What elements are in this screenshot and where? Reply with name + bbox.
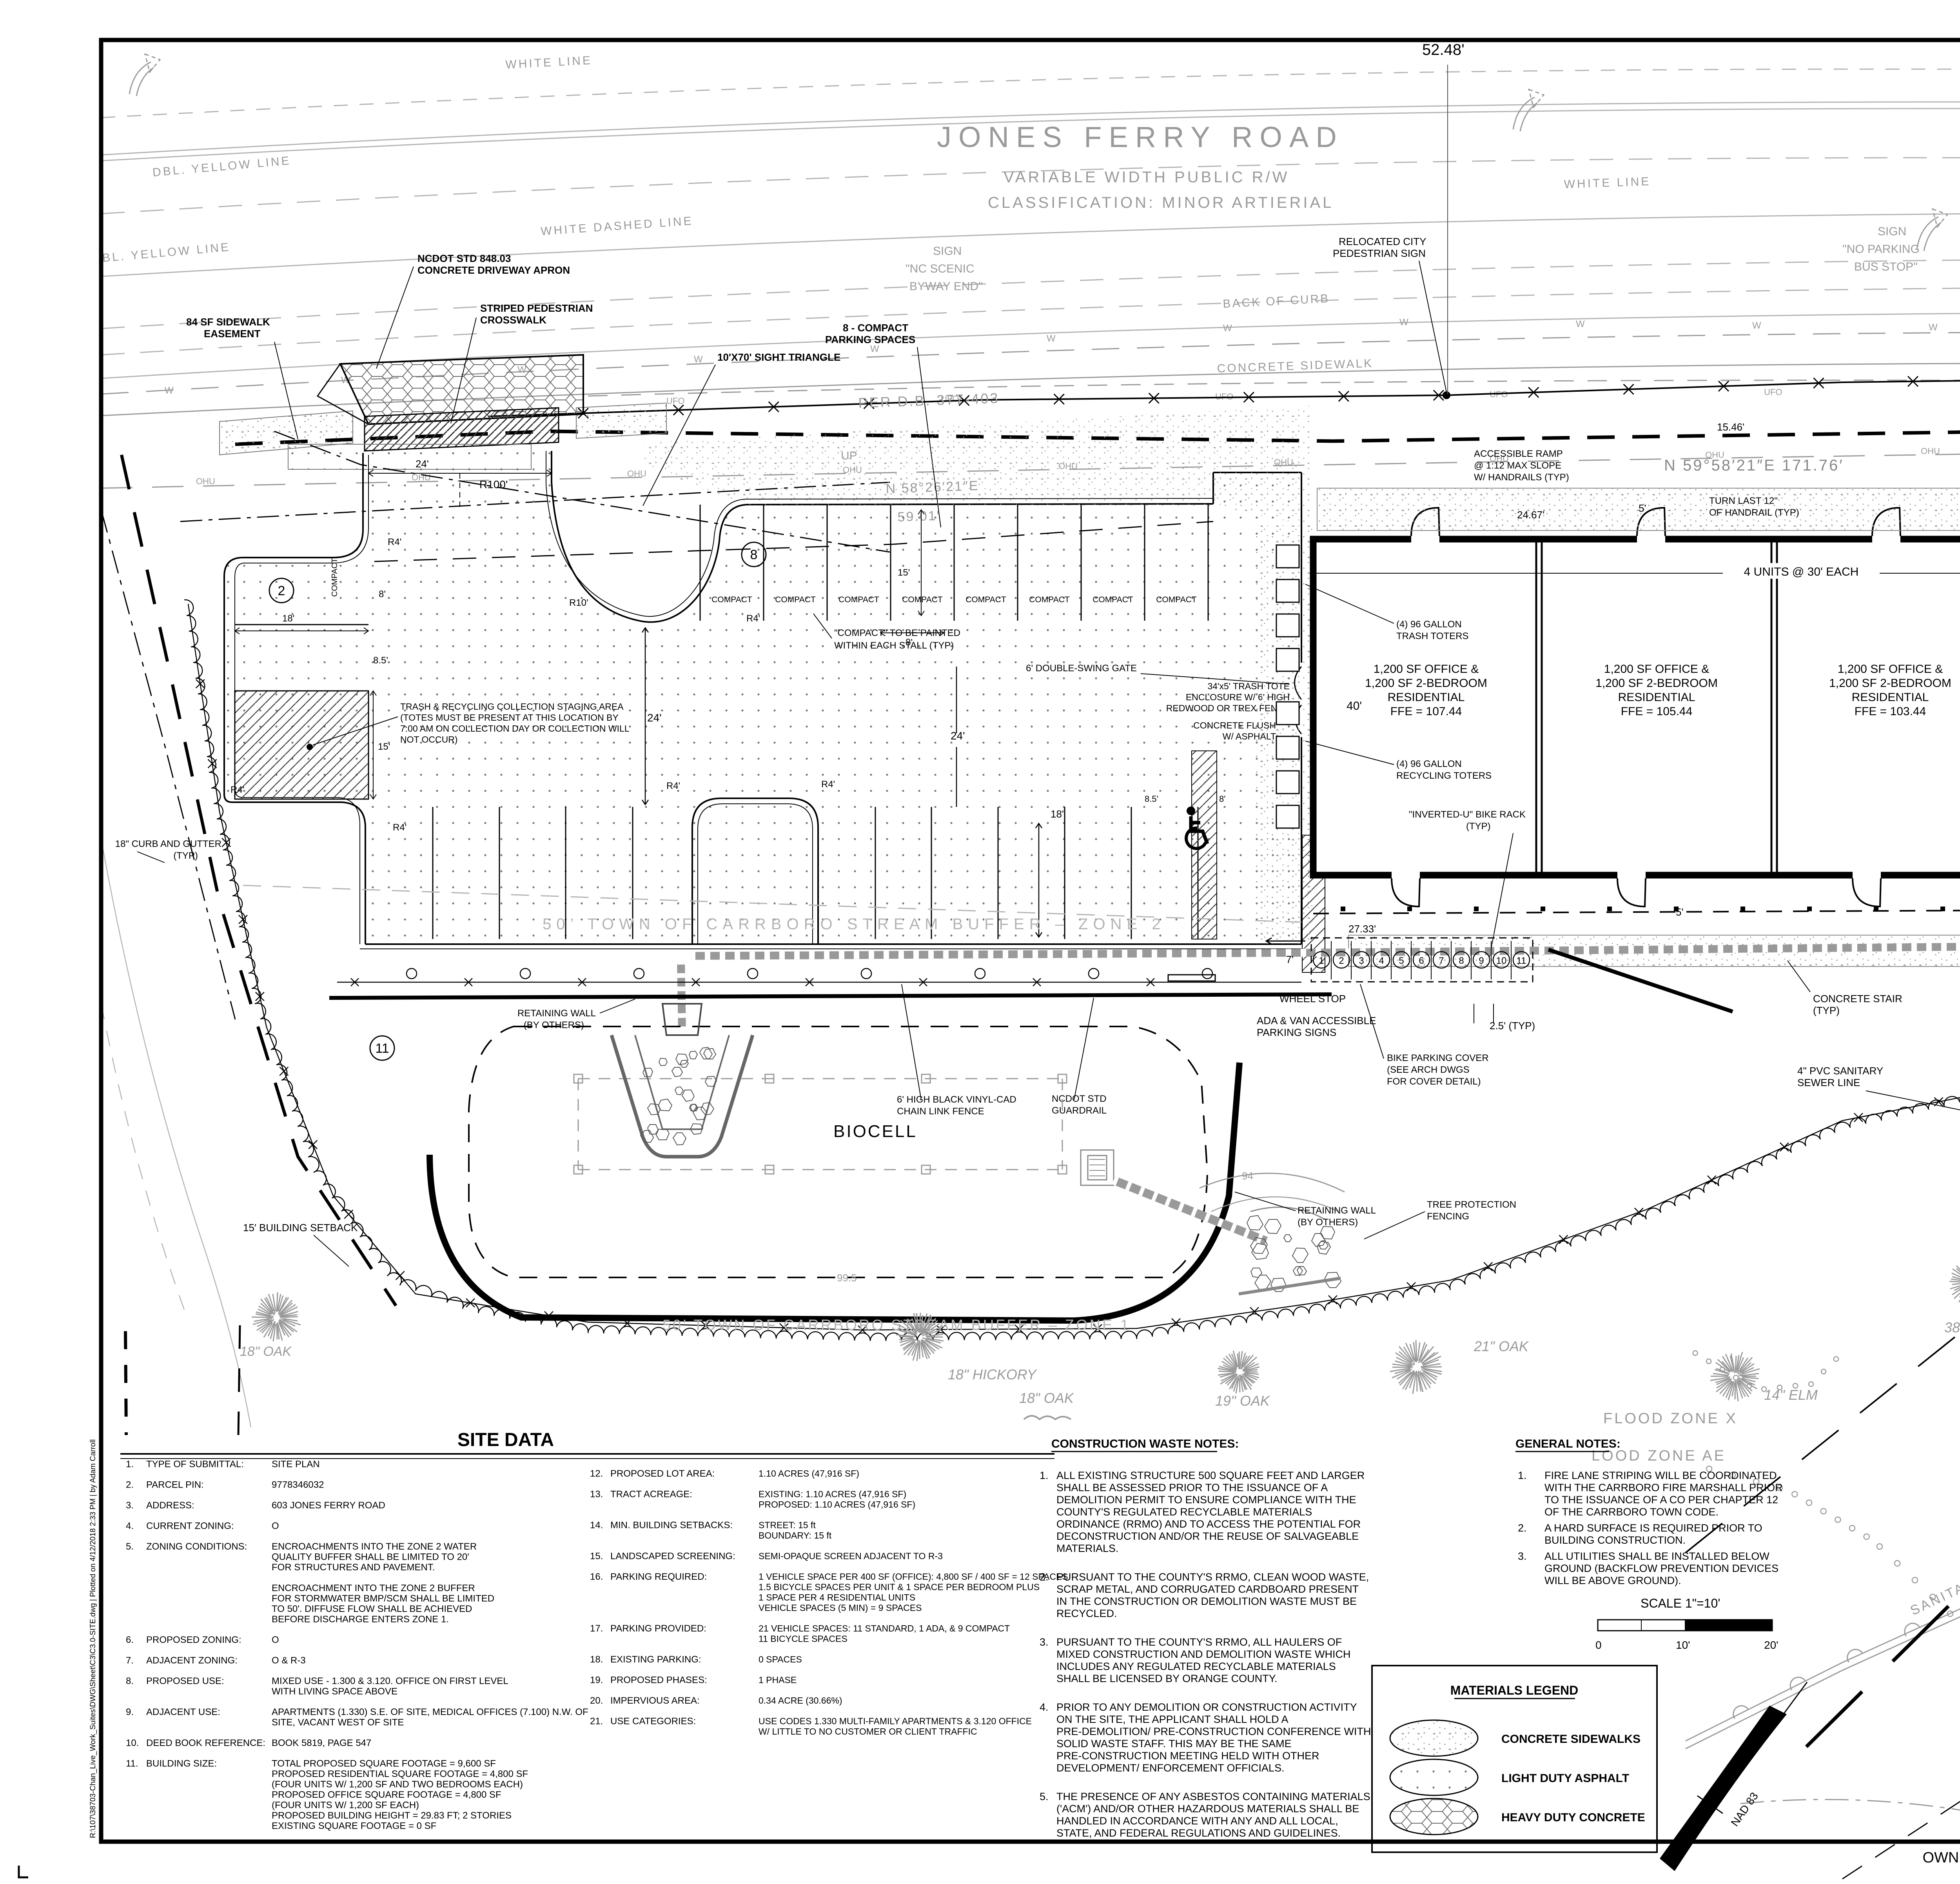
- svg-text:O & R-3: O & R-3: [272, 1655, 306, 1666]
- svg-text:N 59°58′21″E 171.76′: N 59°58′21″E 171.76′: [1664, 457, 1844, 474]
- svg-text:TO THE ISSUANCE OF A CO PER CH: TO THE ISSUANCE OF A CO PER CHAPTER 12: [1544, 1494, 1778, 1506]
- svg-text:PRIOR TO ANY DEMOLITION OR CON: PRIOR TO ANY DEMOLITION OR CONSTRUCTION …: [1056, 1701, 1357, 1713]
- svg-text:BUS STOP": BUS STOP": [1854, 260, 1918, 273]
- svg-text:THE PRESENCE OF ANY ASBESTOS C: THE PRESENCE OF ANY ASBESTOS CONTAINING …: [1056, 1791, 1370, 1802]
- svg-text:OWNER INFORMATION: FRANCIS CHA: OWNER INFORMATION: FRANCIS CHAN; 101 HAR…: [1922, 1849, 1960, 1866]
- svg-text:1.5 BICYCLE SPACES PER UNIT &: 1.5 BICYCLE SPACES PER UNIT & 1 SPACE PE…: [759, 1582, 1040, 1592]
- svg-text:24': 24': [951, 730, 965, 742]
- svg-text:(TYP): (TYP): [1466, 821, 1491, 832]
- svg-text:WITH THE CARRBORO FIRE MARSHAL: WITH THE CARRBORO FIRE MARSHALL PRIOR: [1544, 1482, 1783, 1493]
- svg-text:W: W: [694, 354, 703, 365]
- svg-text:BIKE PARKING COVER: BIKE PARKING COVER: [1387, 1053, 1489, 1063]
- svg-text:8': 8': [1219, 794, 1225, 804]
- svg-text:1 SPACE PER 4 RESIDENTIAL UNIT: 1 SPACE PER 4 RESIDENTIAL UNITS: [759, 1592, 915, 1602]
- svg-text:FOR STORMWATER BMP/SCM SHALL B: FOR STORMWATER BMP/SCM SHALL BE LIMITED: [272, 1593, 494, 1604]
- svg-text:50’ TOWN OF CARRBORO STREA: 50’ TOWN OF CARRBORO STREAM BUFFER – ZON…: [543, 916, 1166, 933]
- svg-text:20.: 20.: [590, 1695, 603, 1706]
- svg-text:24': 24': [416, 458, 429, 470]
- svg-text:8 - COMPACT: 8 - COMPACT: [843, 322, 908, 334]
- svg-text:NOT OCCUR): NOT OCCUR): [400, 734, 458, 745]
- svg-text:14.: 14.: [590, 1520, 603, 1531]
- svg-text:1,200 SF OFFICE &: 1,200 SF OFFICE &: [1374, 663, 1479, 676]
- svg-text:10.: 10.: [126, 1738, 139, 1748]
- svg-text:RECYCLING TOTERS: RECYCLING TOTERS: [1396, 770, 1492, 781]
- svg-text:1 PHASE: 1 PHASE: [759, 1675, 797, 1685]
- svg-text:PARKING SPACES: PARKING SPACES: [825, 334, 915, 345]
- svg-text:@ 1:12 MAX SLOPE: @ 1:12 MAX SLOPE: [1474, 460, 1561, 471]
- svg-text:FFE = 103.44: FFE = 103.44: [1855, 705, 1926, 718]
- svg-text:COMPACT: COMPACT: [965, 595, 1006, 604]
- svg-text:20': 20': [1764, 1639, 1779, 1651]
- svg-text:MATERIALS LEGEND: MATERIALS LEGEND: [1450, 1683, 1579, 1697]
- svg-text:PROPOSED RESIDENTIAL SQUARE FO: PROPOSED RESIDENTIAL SQUARE FOOTAGE = 4,…: [272, 1769, 528, 1779]
- svg-text:O: O: [272, 1521, 279, 1532]
- svg-text:SIGN: SIGN: [933, 245, 962, 258]
- svg-text:R4': R4': [666, 781, 680, 791]
- svg-text:ADDRESS:: ADDRESS:: [146, 1500, 194, 1511]
- svg-text:O: O: [272, 1635, 279, 1645]
- svg-text:RESIDENTIAL: RESIDENTIAL: [1852, 691, 1929, 704]
- svg-text:RETAINING WALL: RETAINING WALL: [517, 1008, 596, 1019]
- svg-text:2.: 2.: [1518, 1522, 1527, 1534]
- svg-text:7:00 AM ON COLLECTION DAY OR C: 7:00 AM ON COLLECTION DAY OR COLLECTION …: [400, 723, 630, 734]
- svg-text:RELOCATED CITY: RELOCATED CITY: [1339, 236, 1426, 247]
- svg-text:5.: 5.: [1040, 1791, 1049, 1802]
- svg-text:CURRENT ZONING:: CURRENT ZONING:: [146, 1521, 234, 1532]
- svg-text:W: W: [1752, 320, 1761, 331]
- svg-text:7': 7': [1286, 954, 1294, 965]
- svg-text:9.: 9.: [126, 1707, 134, 1717]
- svg-text:R100': R100': [479, 478, 508, 491]
- svg-text:ADJACENT USE:: ADJACENT USE:: [146, 1707, 220, 1717]
- svg-text:BYWAY END": BYWAY END": [909, 280, 983, 293]
- svg-text:10: 10: [1496, 956, 1507, 966]
- svg-text:IMPERVIOUS AREA:: IMPERVIOUS AREA:: [610, 1695, 700, 1706]
- svg-text:"INVERTED-U" BIKE RACK: "INVERTED-U" BIKE RACK: [1409, 809, 1526, 820]
- svg-text:18" OAK: 18" OAK: [240, 1344, 292, 1359]
- svg-text:PEDESTRIAN SIGN: PEDESTRIAN SIGN: [1333, 247, 1426, 259]
- svg-text:UP: UP: [841, 449, 857, 462]
- svg-text:18" OAK: 18" OAK: [1019, 1390, 1074, 1406]
- svg-text:STATE, AND FEDERAL REGULATIONS: STATE, AND FEDERAL REGULATIONS AND GUIDE…: [1056, 1827, 1341, 1839]
- svg-text:CONCRETE STAIR: CONCRETE STAIR: [1813, 993, 1902, 1005]
- svg-text:FFE = 105.44: FFE = 105.44: [1621, 705, 1693, 718]
- svg-text:0.34 ACRE (30.66%): 0.34 ACRE (30.66%): [759, 1695, 842, 1706]
- svg-text:COMPACT: COMPACT: [838, 595, 879, 604]
- svg-text:BIOCELL: BIOCELL: [833, 1122, 917, 1141]
- svg-text:R:\107\38703-Chan_Live_Work_Su: R:\107\38703-Chan_Live_Work_Suites\DWG\S…: [89, 1439, 97, 1838]
- svg-text:24.67': 24.67': [1517, 509, 1544, 521]
- svg-text:1.10 ACRES (47,916 SF): 1.10 ACRES (47,916 SF): [759, 1468, 859, 1479]
- svg-text:PARCEL PIN:: PARCEL PIN:: [146, 1480, 204, 1490]
- svg-text:99.5: 99.5: [837, 1272, 857, 1284]
- svg-text:9: 9: [1479, 956, 1484, 966]
- svg-text:ENCROACHMENTS INTO THE ZONE 2: ENCROACHMENTS INTO THE ZONE 2 WATER: [272, 1541, 477, 1552]
- svg-text:CONCRETE SIDEWALKS: CONCRETE SIDEWALKS: [1501, 1733, 1641, 1746]
- svg-text:CLASSIFICATION: MINOR ARTIERI: CLASSIFICATION: MINOR ARTIERIAL: [988, 194, 1334, 211]
- svg-text:PRE-DEMOLITION/ PRE-CONSTRUCTI: PRE-DEMOLITION/ PRE-CONSTRUCTION CONFERE…: [1056, 1726, 1371, 1737]
- svg-text:1,200 SF OFFICE &: 1,200 SF OFFICE &: [1604, 663, 1709, 676]
- svg-text:USE CATEGORIES:: USE CATEGORIES:: [610, 1716, 696, 1727]
- svg-text:TREE PROTECTION: TREE PROTECTION: [1427, 1199, 1516, 1210]
- svg-text:(4) 96 GALLON: (4) 96 GALLON: [1396, 619, 1462, 630]
- svg-text:4.: 4.: [1040, 1701, 1049, 1713]
- svg-text:COMPACT: COMPACT: [1029, 595, 1070, 604]
- svg-text:5': 5': [1639, 502, 1646, 514]
- svg-text:21.: 21.: [590, 1716, 603, 1727]
- svg-text:W: W: [1576, 319, 1585, 329]
- svg-text:R4': R4': [388, 537, 401, 547]
- svg-text:COMPACT: COMPACT: [775, 595, 816, 604]
- svg-text:11 BICYCLE SPACES: 11 BICYCLE SPACES: [759, 1634, 848, 1644]
- svg-text:15': 15': [378, 741, 390, 752]
- svg-text:VARIABLE WIDTH PUBLIC R/W: VARIABLE WIDTH PUBLIC R/W: [1004, 169, 1289, 186]
- svg-text:W: W: [1929, 322, 1938, 332]
- svg-text:DEVELOPMENT/ ENFORCEMENT OFFIC: DEVELOPMENT/ ENFORCEMENT OFFICIALS.: [1056, 1762, 1285, 1774]
- svg-text:FFE = 107.44: FFE = 107.44: [1390, 705, 1462, 718]
- svg-text:FOR STRUCTURES AND PAVEMENT.: FOR STRUCTURES AND PAVEMENT.: [272, 1562, 435, 1573]
- svg-text:GUARDRAIL: GUARDRAIL: [1052, 1105, 1107, 1116]
- svg-text:PROPOSED BUILDING HEIGHT = 29.: PROPOSED BUILDING HEIGHT = 29.83 FT; 2 S…: [272, 1810, 512, 1821]
- svg-text:2: 2: [278, 583, 285, 598]
- svg-text:HANDLED IN ACCORDANCE WITH ANY: HANDLED IN ACCORDANCE WITH ANY AND ALL L…: [1056, 1815, 1338, 1827]
- svg-text:EXISTING SQUARE FOOTAGE = 0 SF: EXISTING SQUARE FOOTAGE = 0 SF: [272, 1821, 436, 1831]
- svg-text:INCLUDES ANY REGULATED RECYCLA: INCLUDES ANY REGULATED RECYCLABLE MATERI…: [1056, 1661, 1336, 1672]
- svg-text:2.5' (TYP): 2.5' (TYP): [1490, 1020, 1535, 1032]
- svg-text:"NO PARKING: "NO PARKING: [1842, 243, 1920, 256]
- svg-text:ENCROACHMENT INTO THE ZONE 2 B: ENCROACHMENT INTO THE ZONE 2 BUFFER: [272, 1583, 475, 1593]
- svg-text:R10': R10': [569, 598, 588, 608]
- svg-text:SCRAP METAL, AND CORRUGATED CA: SCRAP METAL, AND CORRUGATED CARDBOARD PR…: [1056, 1583, 1359, 1595]
- svg-text:COMPACT: COMPACT: [330, 558, 339, 597]
- svg-text:52.48': 52.48': [1422, 41, 1465, 58]
- svg-text:SIGN: SIGN: [1878, 225, 1906, 238]
- svg-text:R4': R4': [230, 785, 244, 795]
- svg-text:"NC SCENIC: "NC SCENIC: [906, 262, 975, 275]
- svg-text:SEMI-OPAQUE SCREEN ADJACENT TO: SEMI-OPAQUE SCREEN ADJACENT TO R-3: [759, 1551, 943, 1561]
- svg-text:8.: 8.: [126, 1676, 134, 1686]
- svg-text:FIRE LANE STRIPING WILL BE COO: FIRE LANE STRIPING WILL BE COORDINATED: [1544, 1470, 1777, 1481]
- svg-text:CHAIN LINK FENCE: CHAIN LINK FENCE: [897, 1106, 984, 1117]
- svg-text:STREET: 15 ft: STREET: 15 ft: [759, 1520, 816, 1530]
- svg-text:18': 18': [282, 613, 294, 624]
- svg-text:BUILDING SIZE:: BUILDING SIZE:: [146, 1759, 217, 1769]
- svg-text:(4) 96 GALLON: (4) 96 GALLON: [1396, 759, 1462, 769]
- svg-text:TRACT ACREAGE:: TRACT ACREAGE:: [610, 1489, 692, 1500]
- svg-text:(FOUR UNITS W/ 1,200 SF AND TW: (FOUR UNITS W/ 1,200 SF AND TWO BEDROOMS…: [272, 1779, 523, 1790]
- svg-text:2.: 2.: [1040, 1571, 1049, 1583]
- svg-text:EXISTING: 1.10 ACRES (47,916: EXISTING: 1.10 ACRES (47,916 SF): [759, 1489, 906, 1499]
- svg-text:R4': R4': [393, 822, 407, 833]
- svg-text:6: 6: [1419, 956, 1424, 966]
- svg-text:PROPOSED USE:: PROPOSED USE:: [146, 1676, 224, 1686]
- svg-text:COMPACT: COMPACT: [1156, 595, 1197, 604]
- svg-text:1.: 1.: [1518, 1470, 1527, 1481]
- svg-text:50’ TOWN OF CARRBORO STREA: 50’ TOWN OF CARRBORO STREAM BUFFER – ZON…: [662, 1317, 1131, 1334]
- svg-text:APARTMENTS (1.330) S.E. OF SIT: APARTMENTS (1.330) S.E. OF SITE, MEDICAL…: [272, 1707, 588, 1717]
- svg-text:SITE PLAN: SITE PLAN: [272, 1459, 320, 1470]
- svg-text:STRIPED PEDESTRIAN: STRIPED PEDESTRIAN: [480, 302, 593, 314]
- svg-text:COMPACT: COMPACT: [711, 595, 752, 604]
- svg-text:10': 10': [1676, 1639, 1690, 1651]
- svg-text:W: W: [1399, 317, 1408, 328]
- svg-text:3.: 3.: [1040, 1636, 1049, 1648]
- svg-text:ZONING CONDITIONS:: ZONING CONDITIONS:: [146, 1541, 247, 1552]
- svg-text:OHU: OHU: [1921, 446, 1940, 456]
- svg-text:1.: 1.: [126, 1459, 134, 1470]
- svg-text:38" OAK: 38" OAK: [1944, 1319, 1960, 1335]
- svg-text:"COMPACT" TO BE PAINTED: "COMPACT" TO BE PAINTED: [834, 628, 960, 638]
- svg-text:4: 4: [1379, 956, 1384, 966]
- svg-text:11.: 11.: [126, 1759, 138, 1769]
- svg-text:DECONSTRUCTION AND/OR THE REUS: DECONSTRUCTION AND/OR THE REUSE OF SALVA…: [1056, 1530, 1359, 1542]
- svg-text:PROPOSED ZONING:: PROPOSED ZONING:: [146, 1635, 241, 1645]
- svg-text:CROSSWALK: CROSSWALK: [480, 314, 546, 326]
- svg-text:BOUNDARY: 15 ft: BOUNDARY: 15 ft: [759, 1530, 832, 1541]
- svg-text:R4': R4': [821, 779, 835, 790]
- svg-text:18': 18': [1051, 808, 1064, 820]
- svg-text:1: 1: [1319, 956, 1324, 966]
- svg-text:RETAINING WALL: RETAINING WALL: [1298, 1205, 1376, 1216]
- svg-text:SEWER LINE: SEWER LINE: [1797, 1077, 1860, 1088]
- svg-text:5: 5: [1399, 956, 1404, 966]
- svg-text:84 SF SIDEWALK: 84 SF SIDEWALK: [186, 316, 270, 328]
- svg-text:JONES FERRY ROAD: JONES FERRY ROAD: [937, 121, 1344, 153]
- svg-text:1,200 SF 2-BEDROOM: 1,200 SF 2-BEDROOM: [1829, 677, 1951, 690]
- svg-text:COMPACT: COMPACT: [902, 595, 943, 604]
- svg-text:DEMOLITION PERMIT TO ENSURE CO: DEMOLITION PERMIT TO ENSURE COMPLIANCE W…: [1056, 1494, 1356, 1506]
- svg-text:ACCESSIBLE RAMP: ACCESSIBLE RAMP: [1474, 449, 1563, 459]
- svg-text:18.: 18.: [590, 1654, 603, 1665]
- svg-text:DEED BOOK REFERENCE:: DEED BOOK REFERENCE:: [146, 1738, 265, 1748]
- svg-text:UFO: UFO: [666, 396, 684, 406]
- svg-text:('ACM') AND/OR OTHER HAZARDOUS: ('ACM') AND/OR OTHER HAZARDOUS MATERIALS…: [1056, 1803, 1359, 1815]
- svg-text:15′ BUILDING SETBACK: 15′ BUILDING SETBACK: [243, 1222, 358, 1234]
- svg-text:1,200 SF OFFICE &: 1,200 SF OFFICE &: [1838, 663, 1943, 676]
- svg-text:PROPOSED PHASES:: PROPOSED PHASES:: [610, 1675, 707, 1686]
- svg-text:24': 24': [647, 712, 662, 724]
- svg-text:W: W: [165, 385, 174, 396]
- svg-text:6.: 6.: [126, 1635, 134, 1645]
- svg-text:18" HICKORY: 18" HICKORY: [948, 1366, 1037, 1383]
- svg-text:PRE-CONSTRUCTION MEETING HELD: PRE-CONSTRUCTION MEETING HELD WITH OTHER: [1056, 1750, 1319, 1762]
- svg-text:1,200 SF 2-BEDROOM: 1,200 SF 2-BEDROOM: [1365, 677, 1487, 690]
- svg-text:6' HIGH BLACK VINYL-CAD: 6' HIGH BLACK VINYL-CAD: [897, 1094, 1016, 1105]
- svg-text:10'X70' SIGHT TRIANGLE: 10'X70' SIGHT TRIANGLE: [717, 351, 840, 363]
- svg-text:PROPOSED: 1.10 ACRES (47,916 S: PROPOSED: 1.10 ACRES (47,916 SF): [759, 1499, 915, 1510]
- svg-text:0 SPACES: 0 SPACES: [759, 1654, 802, 1664]
- svg-text:603 JONES FERRY ROAD: 603 JONES FERRY ROAD: [272, 1500, 385, 1511]
- svg-text:5.: 5.: [126, 1541, 134, 1552]
- svg-text:W: W: [1223, 323, 1232, 333]
- svg-text:PARKING REQUIRED:: PARKING REQUIRED:: [610, 1572, 707, 1582]
- svg-text:PROPOSED OFFICE SQUARE FOOTAGE: PROPOSED OFFICE SQUARE FOOTAGE = 4,800 S…: [272, 1790, 501, 1800]
- svg-text:A HARD SURFACE IS REQUIRED PRI: A HARD SURFACE IS REQUIRED PRIOR TO: [1544, 1522, 1762, 1534]
- svg-text:VEHICLE SPACES (5 MIN) = 9 SPA: VEHICLE SPACES (5 MIN) = 9 SPACES: [759, 1603, 922, 1613]
- svg-text:PARKING PROVIDED:: PARKING PROVIDED:: [610, 1623, 706, 1634]
- svg-text:BUILDING CONSTRUCTION.: BUILDING CONSTRUCTION.: [1544, 1534, 1686, 1546]
- svg-text:17.: 17.: [590, 1623, 603, 1634]
- svg-text:OHU: OHU: [627, 469, 646, 479]
- svg-text:(BY OTHERS): (BY OTHERS): [524, 1020, 584, 1030]
- svg-text:TRASH & RECYCLING COLLECTION S: TRASH & RECYCLING COLLECTION STAGING ARE…: [400, 701, 624, 712]
- svg-text:GROUND (BACKFLOW PREVENTION DE: GROUND (BACKFLOW PREVENTION DEVICES: [1544, 1562, 1779, 1574]
- svg-text:BEFORE DISCHARGE ENTERS ZONE 1: BEFORE DISCHARGE ENTERS ZONE 1.: [272, 1614, 449, 1625]
- svg-text:14" ELM: 14" ELM: [1764, 1387, 1818, 1403]
- svg-text:3: 3: [1359, 956, 1364, 966]
- svg-text:MATERIALS.: MATERIALS.: [1056, 1542, 1119, 1554]
- svg-text:94: 94: [1242, 1170, 1253, 1182]
- svg-text:MIXED CONSTRUCTION AND DEMOLIT: MIXED CONSTRUCTION AND DEMOLITION WASTE …: [1056, 1648, 1351, 1660]
- svg-text:6' DOUBLE-SWING GATE: 6' DOUBLE-SWING GATE: [1026, 663, 1137, 674]
- svg-text:8.5': 8.5': [1145, 794, 1158, 804]
- svg-text:TOTAL PROPOSED SQUARE FOOTAGE: TOTAL PROPOSED SQUARE FOOTAGE = 9,600 SF: [272, 1759, 496, 1769]
- svg-text:16.: 16.: [590, 1572, 603, 1582]
- svg-text:OF THE CARRBORO TOWN CODE.: OF THE CARRBORO TOWN CODE.: [1544, 1506, 1719, 1518]
- svg-text:LANDSCAPED SCREENING:: LANDSCAPED SCREENING:: [610, 1551, 735, 1562]
- svg-text:4" PVC SANITARY: 4" PVC SANITARY: [1797, 1065, 1883, 1077]
- svg-text:3.: 3.: [1518, 1550, 1527, 1562]
- svg-text:8': 8': [379, 589, 386, 600]
- svg-text:27.33': 27.33': [1348, 923, 1376, 935]
- svg-text:TURN LAST 12": TURN LAST 12": [1709, 496, 1778, 506]
- svg-text:QUALITY BUFFER SHALL BE LIMITE: QUALITY BUFFER SHALL BE LIMITED TO 20': [272, 1552, 469, 1562]
- svg-text:SHALL BE ASSESSED PRIOR TO THE: SHALL BE ASSESSED PRIOR TO THE ISSUANCE …: [1056, 1482, 1328, 1493]
- svg-text:USE CODES 1.330 MULTI-FAMILY A: USE CODES 1.330 MULTI-FAMILY APARTMENTS …: [759, 1716, 1032, 1726]
- svg-text:ADA & VAN ACCESSIBLE: ADA & VAN ACCESSIBLE: [1257, 1015, 1376, 1026]
- svg-text:CONSTRUCTION WASTE NOTES:: CONSTRUCTION WASTE NOTES:: [1051, 1437, 1239, 1450]
- svg-text:SITE, VACANT WEST OF SITE: SITE, VACANT WEST OF SITE: [272, 1717, 404, 1728]
- svg-text:PARKING SIGNS: PARKING SIGNS: [1257, 1026, 1336, 1038]
- svg-text:9778346032: 9778346032: [272, 1480, 324, 1490]
- svg-text:FOR COVER DETAIL): FOR COVER DETAIL): [1387, 1076, 1481, 1087]
- svg-text:SOLID WASTE STAFF. THIS MAY BE: SOLID WASTE STAFF. THIS MAY BE THE SAME: [1056, 1738, 1292, 1750]
- svg-text:4.: 4.: [126, 1521, 134, 1532]
- svg-text:MIN. BUILDING SETBACKS:: MIN. BUILDING SETBACKS:: [610, 1520, 733, 1531]
- svg-text:W/ LITTLE TO NO CUSTOMER OR CL: W/ LITTLE TO NO CUSTOMER OR CLIENT TRAFF…: [759, 1726, 977, 1737]
- svg-text:ORDINANCE (RRMO) AND TO ACCESS: ORDINANCE (RRMO) AND TO ACCESS THE POTEN…: [1056, 1518, 1361, 1530]
- svg-text:BOOK 5819, PAGE 547: BOOK 5819, PAGE 547: [272, 1738, 371, 1748]
- svg-text:15': 15': [898, 567, 910, 578]
- svg-text:1 VEHICLE SPACE PER 400 SF (OF: 1 VEHICLE SPACE PER 400 SF (OFFICE): 4,8…: [759, 1572, 1068, 1582]
- svg-text:13.: 13.: [590, 1489, 603, 1500]
- svg-text:PROPOSED LOT AREA:: PROPOSED LOT AREA:: [610, 1468, 715, 1479]
- svg-text:COUNTY'S REGULATED RECYCLABLE: COUNTY'S REGULATED RECYCLABLE MATERIALS: [1056, 1506, 1312, 1518]
- svg-text:IN THE CONSTRUCTION OR DEMOLIT: IN THE CONSTRUCTION OR DEMOLITION WASTE …: [1056, 1595, 1357, 1607]
- svg-text:W: W: [1047, 333, 1056, 344]
- svg-text:11: 11: [375, 1041, 389, 1056]
- svg-text:TO 50'. DIFFUSE FLOW SHALL BE: TO 50'. DIFFUSE FLOW SHALL BE ACHIEVED: [272, 1604, 472, 1614]
- svg-text:2.: 2.: [126, 1480, 134, 1490]
- svg-text:RESIDENTIAL: RESIDENTIAL: [1388, 691, 1465, 704]
- svg-text:EASEMENT: EASEMENT: [204, 328, 261, 340]
- svg-text:0: 0: [1595, 1639, 1602, 1651]
- svg-text:MIXED USE - 1.300 & 3.120. OFF: MIXED USE - 1.300 & 3.120. OFFICE ON FIR…: [272, 1676, 508, 1686]
- svg-text:EXISTING PARKING:: EXISTING PARKING:: [610, 1654, 701, 1665]
- svg-text:HEAVY DUTY CONCRETE: HEAVY DUTY CONCRETE: [1501, 1811, 1645, 1824]
- svg-text:GENERAL NOTES:: GENERAL NOTES:: [1515, 1437, 1621, 1450]
- svg-text:ALL EXISTING STRUCTURE 500 SQU: ALL EXISTING STRUCTURE 500 SQUARE FEET A…: [1056, 1470, 1365, 1481]
- svg-text:FENCING: FENCING: [1427, 1211, 1469, 1222]
- svg-text:ADJACENT ZONING:: ADJACENT ZONING:: [146, 1655, 238, 1666]
- svg-text:NCDOT STD 848.03: NCDOT STD 848.03: [417, 253, 511, 264]
- svg-text:UFO: UFO: [1215, 392, 1233, 402]
- svg-text:OHU: OHU: [196, 476, 215, 486]
- svg-text:2: 2: [1339, 956, 1344, 966]
- svg-text:12.: 12.: [590, 1468, 603, 1479]
- svg-text:SHALL BE LICENSED BY ORANGE CO: SHALL BE LICENSED BY ORANGE COUNTY.: [1056, 1673, 1278, 1684]
- svg-text:SITE DATA: SITE DATA: [457, 1430, 554, 1450]
- svg-text:(FOUR UNITS W/ 1,200 SF EACH): (FOUR UNITS W/ 1,200 SF EACH): [272, 1800, 419, 1811]
- svg-text:1,200 SF 2-BEDROOM: 1,200 SF 2-BEDROOM: [1595, 677, 1718, 690]
- svg-text:CONCRETE DRIVEWAY APRON: CONCRETE DRIVEWAY APRON: [417, 264, 570, 276]
- svg-text:21" OAK: 21" OAK: [1474, 1338, 1529, 1354]
- svg-text:TRASH TOTERS: TRASH TOTERS: [1396, 631, 1468, 641]
- svg-text:21 VEHICLE SPACES: 11 STANDARD: 21 VEHICLE SPACES: 11 STANDARD, 1 ADA, &…: [759, 1623, 1010, 1633]
- svg-text:WITH LIVING SPACE ABOVE: WITH LIVING SPACE ABOVE: [272, 1686, 397, 1697]
- svg-text:LIGHT DUTY ASPHALT: LIGHT DUTY ASPHALT: [1501, 1772, 1629, 1785]
- svg-text:WILL BE ABOVE GROUND).: WILL BE ABOVE GROUND).: [1544, 1575, 1681, 1586]
- svg-text:19.: 19.: [590, 1675, 603, 1686]
- svg-text:PURSUANT TO THE COUNTY'S RRMO,: PURSUANT TO THE COUNTY'S RRMO, ALL HAULE…: [1056, 1636, 1342, 1648]
- svg-text:(TYP): (TYP): [1813, 1005, 1840, 1016]
- svg-text:15.: 15.: [590, 1551, 603, 1562]
- svg-text:(TOTES MUST BE PRESENT AT THIS: (TOTES MUST BE PRESENT AT THIS LOCATION …: [400, 712, 619, 723]
- svg-text:3.: 3.: [126, 1500, 134, 1511]
- svg-text:7.: 7.: [126, 1655, 134, 1666]
- svg-text:PURSUANT TO THE COUNTY'S RRMO,: PURSUANT TO THE COUNTY'S RRMO, CLEAN WOO…: [1056, 1571, 1369, 1583]
- svg-text:(SEE ARCH DWGS: (SEE ARCH DWGS: [1387, 1065, 1470, 1075]
- svg-text:(BY OTHERS): (BY OTHERS): [1298, 1217, 1358, 1228]
- svg-text:NCDOT STD: NCDOT STD: [1052, 1094, 1107, 1104]
- svg-text:R4': R4': [746, 613, 760, 624]
- svg-text:RECYCLED.: RECYCLED.: [1056, 1608, 1117, 1619]
- svg-text:11: 11: [1517, 956, 1526, 966]
- svg-text:ON THE SITE, THE APPLICANT SHA: ON THE SITE, THE APPLICANT SHALL HOLD A: [1056, 1713, 1289, 1725]
- svg-text:RESIDENTIAL: RESIDENTIAL: [1618, 691, 1695, 704]
- svg-text:19" OAK: 19" OAK: [1215, 1393, 1270, 1409]
- svg-text:8.5': 8.5': [373, 655, 388, 666]
- svg-text:ALL UTILITIES SHALL BE INSTALL: ALL UTILITIES SHALL BE INSTALLED BELOW: [1544, 1550, 1769, 1562]
- svg-text:OF HANDRAIL (TYP): OF HANDRAIL (TYP): [1709, 507, 1799, 518]
- svg-text:8: 8: [1459, 956, 1464, 966]
- svg-text:40': 40': [1347, 699, 1362, 712]
- svg-text:15.46': 15.46': [1717, 421, 1744, 433]
- svg-text:UFO: UFO: [1764, 387, 1782, 397]
- svg-text:4 UNITS @ 30' EACH: 4 UNITS @ 30' EACH: [1744, 565, 1859, 578]
- svg-text:SCALE 1"=10': SCALE 1"=10': [1641, 1596, 1720, 1610]
- svg-text:WITHIN EACH STALL (TYP): WITHIN EACH STALL (TYP): [834, 640, 954, 651]
- svg-text:FLOOD ZONE X: FLOOD ZONE X: [1603, 1410, 1738, 1427]
- svg-text:7: 7: [1439, 956, 1444, 966]
- svg-text:COMPACT: COMPACT: [1093, 595, 1133, 604]
- svg-text:18" CURB AND GUTTER: 18" CURB AND GUTTER: [115, 839, 221, 849]
- svg-text:8: 8: [750, 547, 758, 562]
- svg-text:W/ HANDRAILS (TYP): W/ HANDRAILS (TYP): [1474, 472, 1569, 483]
- svg-text:1.: 1.: [1040, 1470, 1049, 1481]
- svg-text:TYPE OF SUBMITTAL:: TYPE OF SUBMITTAL:: [146, 1459, 244, 1470]
